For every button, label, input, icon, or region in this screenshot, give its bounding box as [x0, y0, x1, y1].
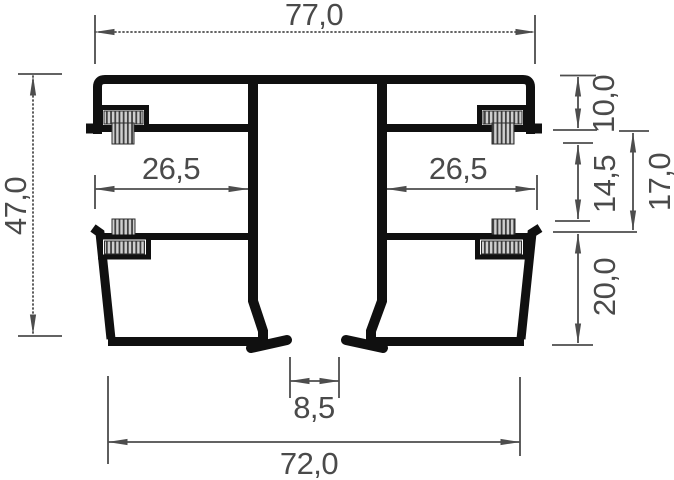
- profile-cross-section-drawing: 77,0 47,0 26,5 26,5 10,0: [0, 0, 674, 480]
- dimension-label: 26,5: [142, 151, 200, 186]
- dimension-label: 26,5: [429, 151, 487, 186]
- dimension-label: 14,5: [587, 155, 622, 213]
- trunk-left-wall: [253, 80, 263, 341]
- dimension-label: 47,0: [0, 177, 33, 236]
- brush-tuft: [492, 123, 514, 144]
- brush-tuft: [112, 123, 134, 144]
- dimension-recess-left: 26,5: [95, 151, 248, 209]
- brush-seal-top-right: [480, 108, 526, 145]
- dimension-label: 8,5: [293, 390, 335, 425]
- brush-seal-bottom-left: [101, 219, 149, 257]
- dimension-head-height: 10,0: [553, 75, 621, 134]
- dimension-label: 10,0: [586, 75, 621, 134]
- dimension-label: 20,0: [587, 258, 622, 317]
- dimension-label: 72,0: [280, 446, 339, 480]
- dimension-label: 17,0: [642, 153, 674, 212]
- dimension-foot-gap: 8,5: [290, 357, 339, 425]
- brush-base: [104, 111, 143, 124]
- dimension-recess-right: 26,5: [387, 151, 537, 210]
- dimension-width-top: 77,0: [95, 0, 535, 64]
- dimension-base-height: 20,0: [552, 232, 637, 345]
- aluminium-profile: [86, 80, 542, 349]
- dimension-label: 77,0: [285, 0, 344, 32]
- trunk-right-wall: [371, 80, 382, 341]
- dimension-recess-inner-height: 14,5: [555, 143, 622, 221]
- brush-seal-top-left: [101, 108, 147, 145]
- dimension-height-overall: 47,0: [0, 74, 62, 336]
- brush-base: [482, 241, 522, 254]
- brush-base: [105, 241, 145, 254]
- dimension-recess-outer-height: 17,0: [619, 131, 674, 230]
- brush-seal-bottom-right: [478, 219, 526, 257]
- brush-base: [483, 111, 522, 124]
